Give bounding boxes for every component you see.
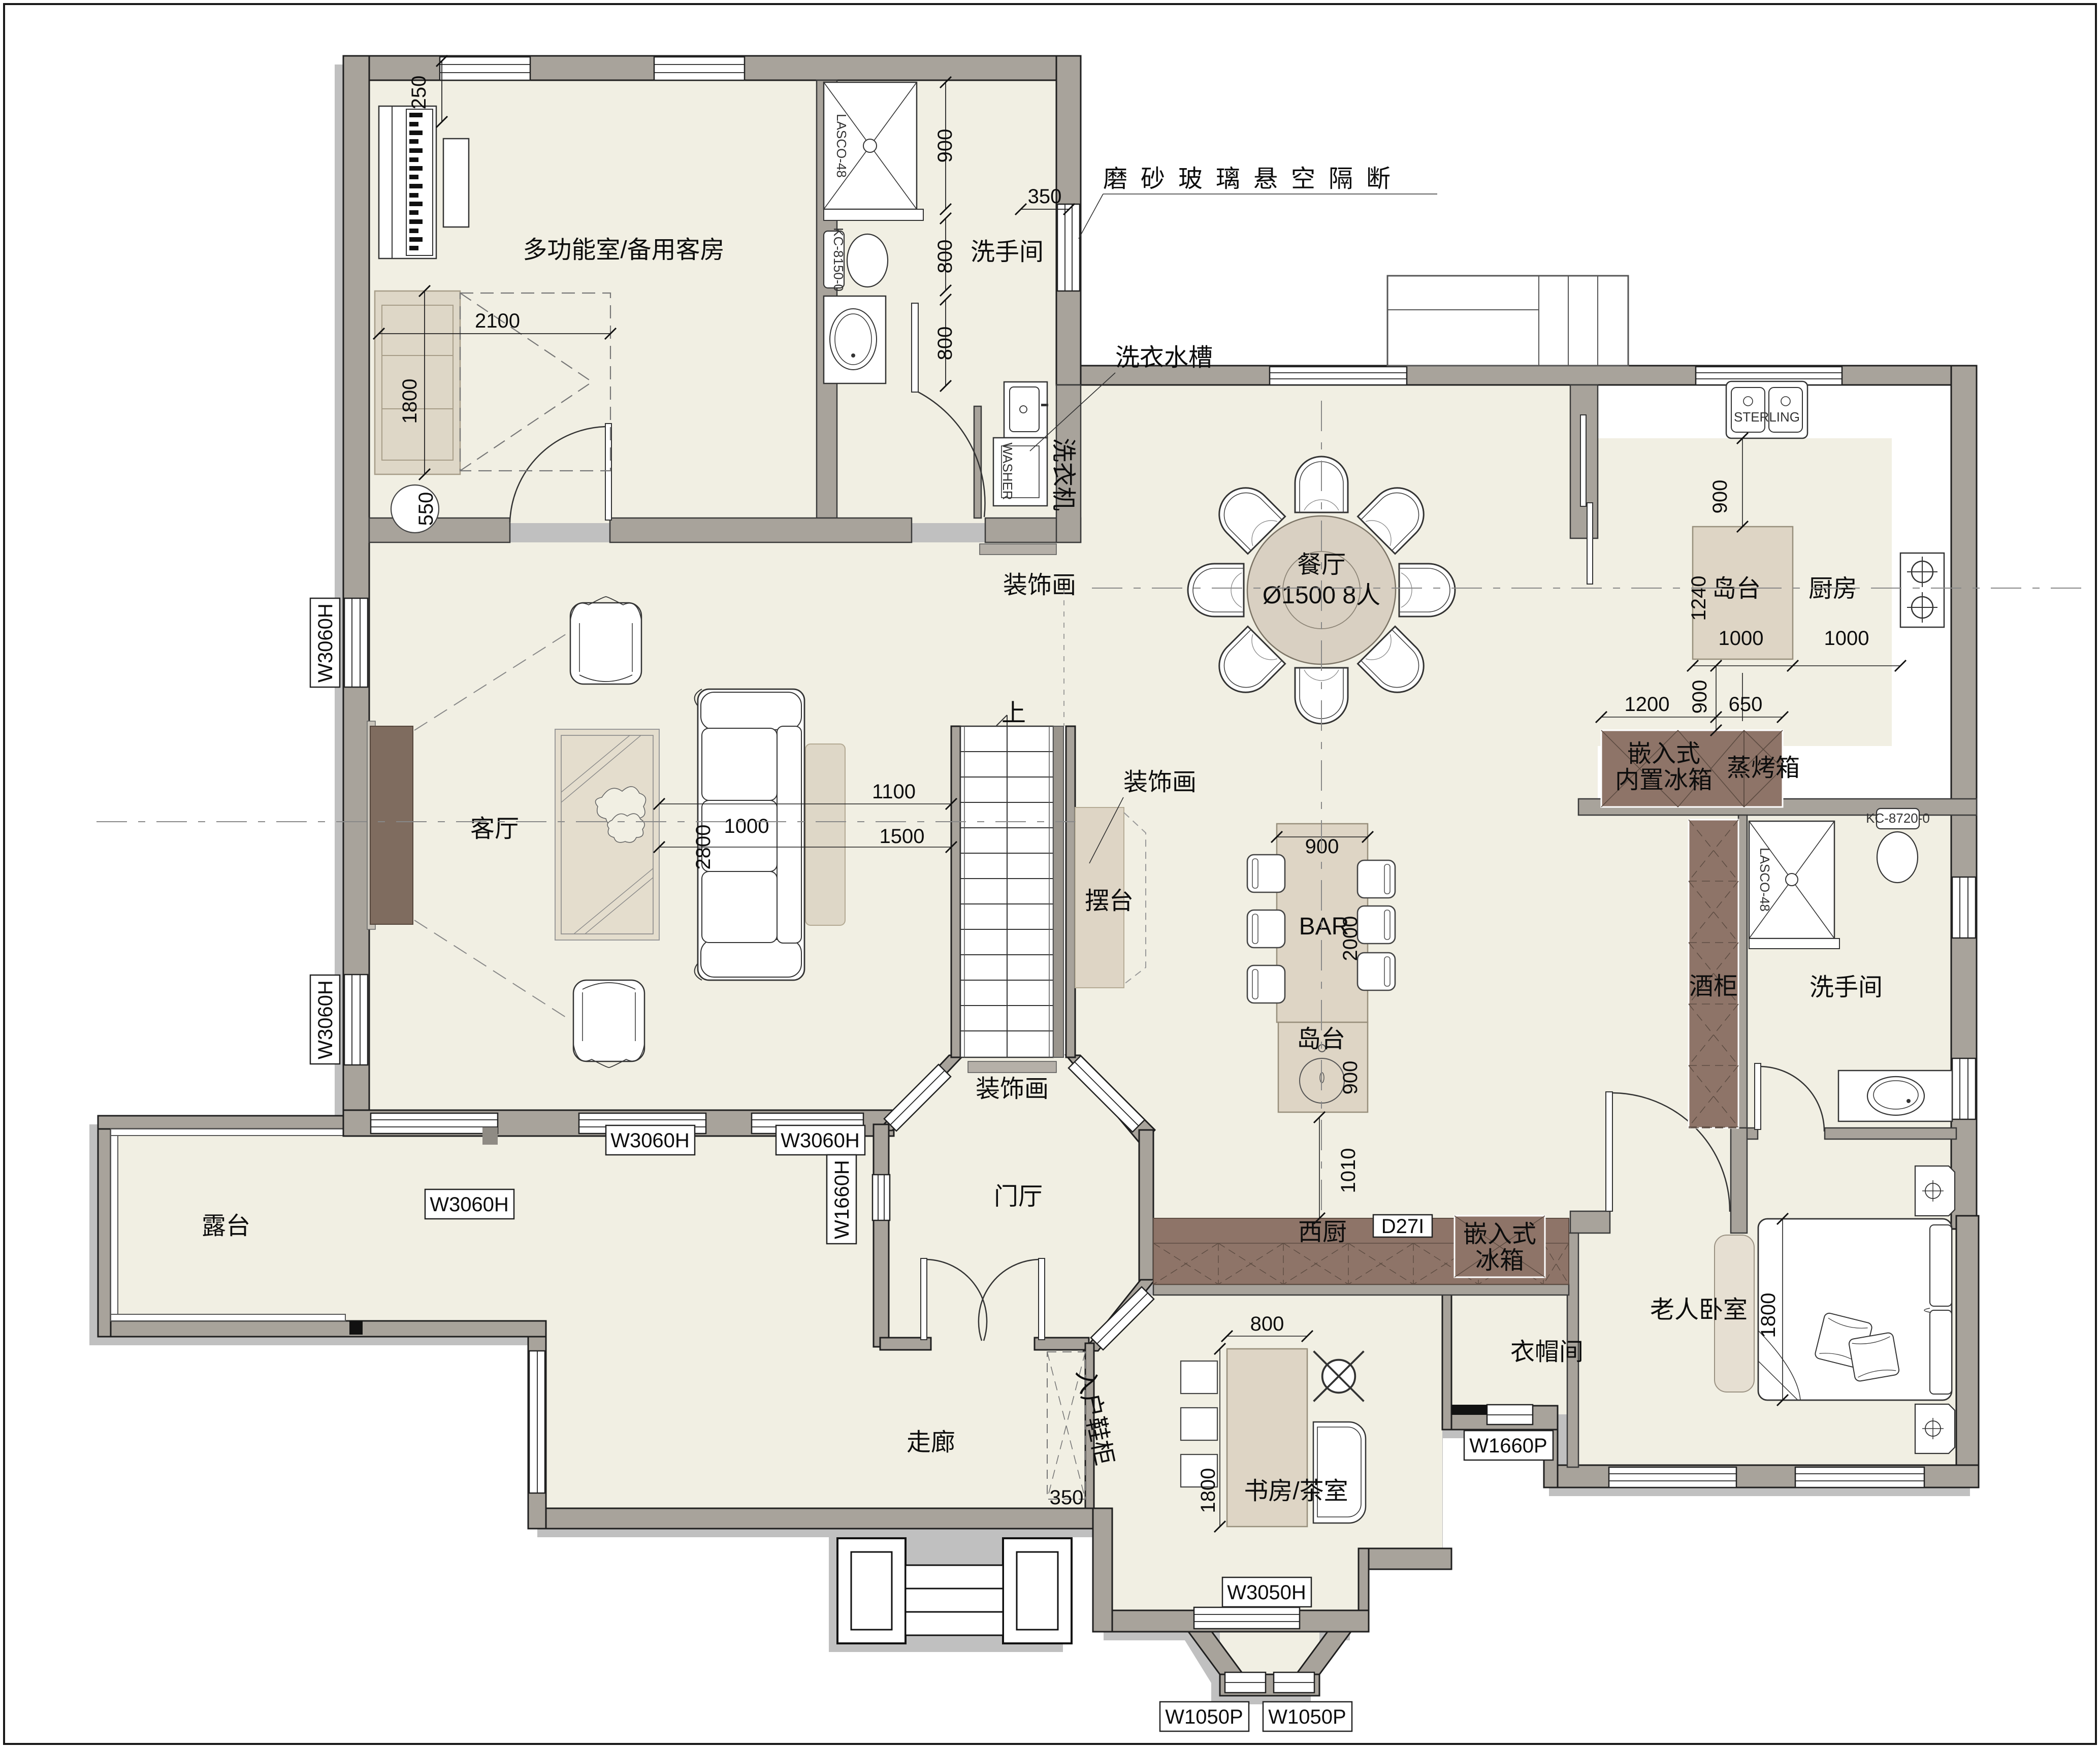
- svg-text:装饰画: 装饰画: [1003, 572, 1076, 599]
- svg-text:W3050H: W3050H: [1227, 1581, 1306, 1604]
- svg-text:1000: 1000: [1824, 627, 1869, 650]
- svg-text:走廊: 走廊: [907, 1429, 955, 1456]
- svg-text:1800: 1800: [399, 379, 421, 424]
- svg-text:1010: 1010: [1337, 1148, 1360, 1193]
- svg-text:350: 350: [1028, 185, 1062, 208]
- svg-text:1200: 1200: [1625, 693, 1670, 716]
- svg-text:W1660P: W1660P: [1469, 1435, 1547, 1457]
- svg-text:KC-8720-0: KC-8720-0: [1866, 811, 1930, 826]
- svg-text:洗手间: 洗手间: [971, 239, 1044, 266]
- svg-text:嵌入式: 嵌入式: [1627, 740, 1700, 767]
- svg-text:衣帽间: 衣帽间: [1510, 1339, 1584, 1366]
- svg-text:800: 800: [934, 240, 956, 274]
- svg-text:上: 上: [1001, 700, 1026, 727]
- svg-text:W1050P: W1050P: [1165, 1706, 1243, 1728]
- svg-text:门厅: 门厅: [994, 1183, 1043, 1210]
- svg-text:厨房: 厨房: [1808, 575, 1857, 602]
- svg-text:900: 900: [1709, 480, 1731, 514]
- svg-text:350: 350: [1050, 1486, 1084, 1509]
- svg-text:1800: 1800: [1757, 1293, 1780, 1338]
- svg-text:W3060H: W3060H: [430, 1193, 509, 1216]
- svg-text:900: 900: [934, 129, 956, 163]
- svg-text:800: 800: [934, 327, 956, 361]
- svg-text:900: 900: [1339, 1061, 1362, 1095]
- svg-text:650: 650: [1729, 693, 1763, 716]
- svg-text:STERLING: STERLING: [1734, 409, 1800, 425]
- svg-text:W3060H: W3060H: [781, 1129, 860, 1152]
- svg-text:磨砂玻璃悬空隔断: 磨砂玻璃悬空隔断: [1103, 166, 1404, 192]
- svg-text:岛台: 岛台: [1712, 575, 1761, 602]
- svg-text:1240: 1240: [1688, 576, 1710, 621]
- svg-text:W3060H: W3060H: [610, 1129, 690, 1152]
- svg-text:1000: 1000: [724, 815, 769, 837]
- svg-text:KC-8150-0: KC-8150-0: [831, 228, 846, 292]
- svg-text:西厨: 西厨: [1298, 1219, 1347, 1246]
- svg-text:蒸烤箱: 蒸烤箱: [1727, 755, 1800, 782]
- svg-text:LASCO-48: LASCO-48: [834, 114, 849, 178]
- svg-text:W1050P: W1050P: [1268, 1706, 1346, 1728]
- svg-text:冰箱: 冰箱: [1475, 1247, 1524, 1274]
- svg-text:2100: 2100: [475, 310, 520, 332]
- svg-text:250: 250: [408, 76, 430, 110]
- svg-text:2800: 2800: [692, 825, 715, 870]
- svg-text:1000: 1000: [1719, 627, 1764, 650]
- svg-text:2000: 2000: [1339, 916, 1362, 961]
- svg-text:多功能室/备用客房: 多功能室/备用客房: [523, 237, 724, 264]
- svg-text:1100: 1100: [872, 781, 916, 803]
- svg-text:D27I: D27I: [1381, 1215, 1425, 1238]
- svg-text:1800: 1800: [1197, 1468, 1219, 1513]
- svg-text:装饰画: 装饰画: [1123, 769, 1197, 796]
- svg-text:LASCO-48: LASCO-48: [1757, 848, 1772, 912]
- svg-text:洗手间: 洗手间: [1810, 974, 1883, 1001]
- svg-text:900: 900: [1689, 680, 1711, 714]
- svg-text:WASHER: WASHER: [1000, 442, 1015, 500]
- svg-text:露台: 露台: [202, 1213, 250, 1240]
- svg-text:老人卧室: 老人卧室: [1650, 1297, 1748, 1323]
- svg-text:550: 550: [415, 492, 437, 526]
- svg-text:W1660H: W1660H: [831, 1160, 853, 1239]
- svg-text:800: 800: [1250, 1313, 1284, 1335]
- svg-text:酒柜: 酒柜: [1689, 973, 1738, 1000]
- svg-text:洗衣机: 洗衣机: [1050, 438, 1077, 511]
- svg-text:书房/茶室: 书房/茶室: [1244, 1478, 1348, 1505]
- svg-text:内置冰箱: 内置冰箱: [1615, 767, 1713, 794]
- svg-text:W3060H: W3060H: [314, 980, 337, 1059]
- svg-text:洗衣水槽: 洗衣水槽: [1115, 344, 1213, 371]
- svg-text:摆台: 摆台: [1085, 888, 1134, 915]
- svg-text:嵌入式: 嵌入式: [1463, 1221, 1536, 1248]
- svg-text:W3060H: W3060H: [314, 603, 337, 683]
- svg-text:客厅: 客厅: [470, 816, 519, 843]
- svg-text:1500: 1500: [880, 825, 925, 848]
- svg-text:装饰画: 装饰画: [976, 1076, 1049, 1103]
